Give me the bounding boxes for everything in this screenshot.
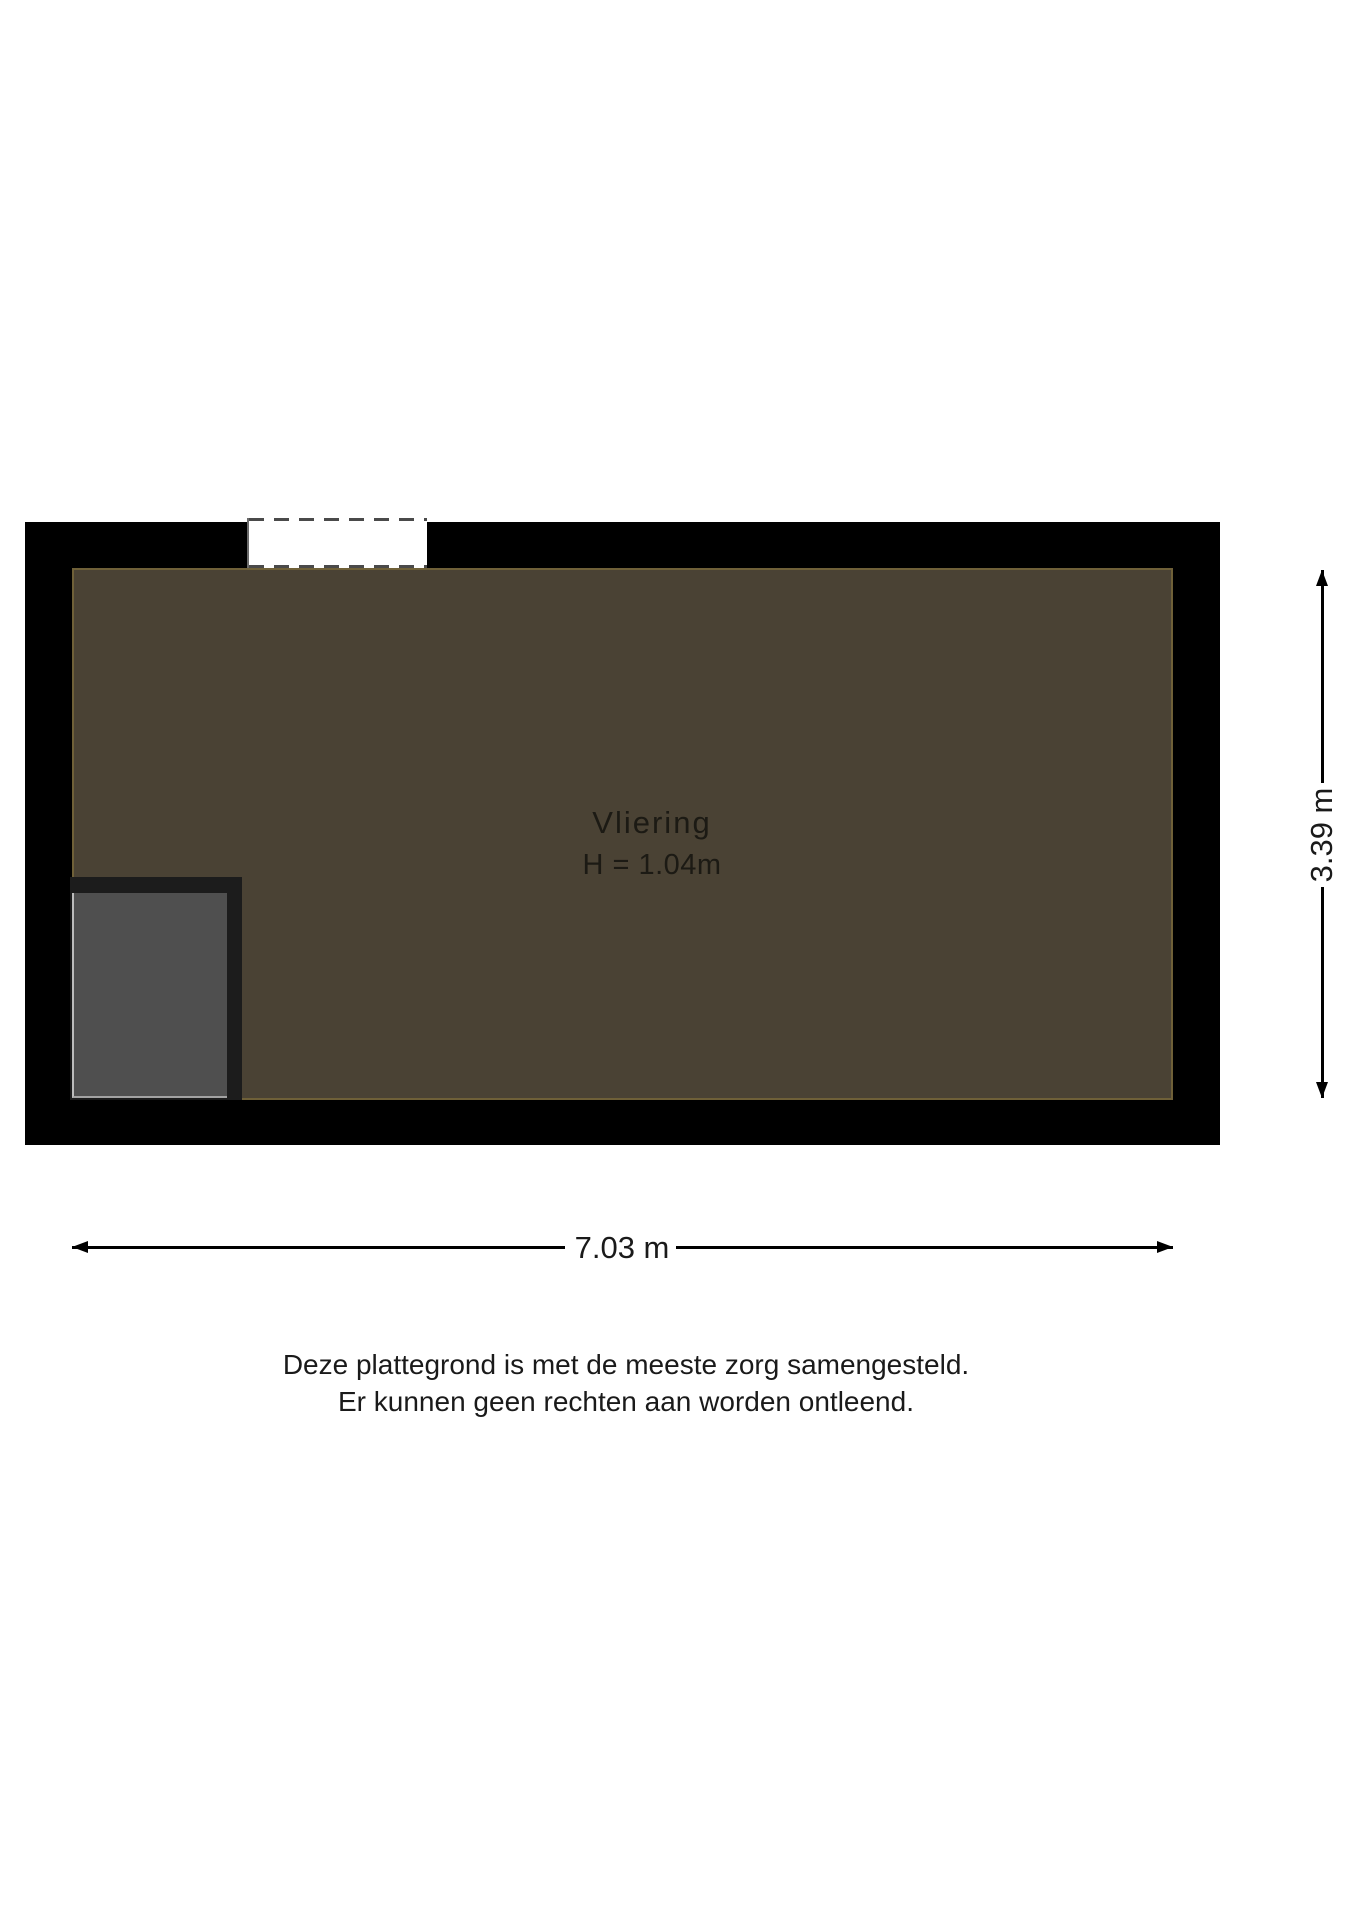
arrow-up-icon <box>1316 570 1328 586</box>
room-ceiling-height: H = 1.04m <box>452 848 852 882</box>
width-dimension-label: 7.03 m <box>422 1230 822 1266</box>
arrow-right-icon <box>1157 1241 1173 1253</box>
dormer-window-icon <box>247 518 427 568</box>
arrow-left-icon <box>72 1241 88 1253</box>
disclaimer-line-2: Er kunnen geen rechten aan worden ontlee… <box>126 1383 1126 1420</box>
height-dimension-label: 3.39 m <box>1304 635 1340 1035</box>
disclaimer-line-1: Deze plattegrond is met de meeste zorg s… <box>126 1346 1126 1383</box>
room-label: Vliering H = 1.04m <box>452 804 852 882</box>
disclaimer: Deze plattegrond is met de meeste zorg s… <box>126 1346 1126 1420</box>
stair-hatch <box>72 893 227 1098</box>
floorplan-page: Vliering H = 1.04m 7.03 m 3.39 m Deze pl… <box>0 0 1358 1920</box>
arrow-down-icon <box>1316 1082 1328 1098</box>
room-name: Vliering <box>452 804 852 842</box>
